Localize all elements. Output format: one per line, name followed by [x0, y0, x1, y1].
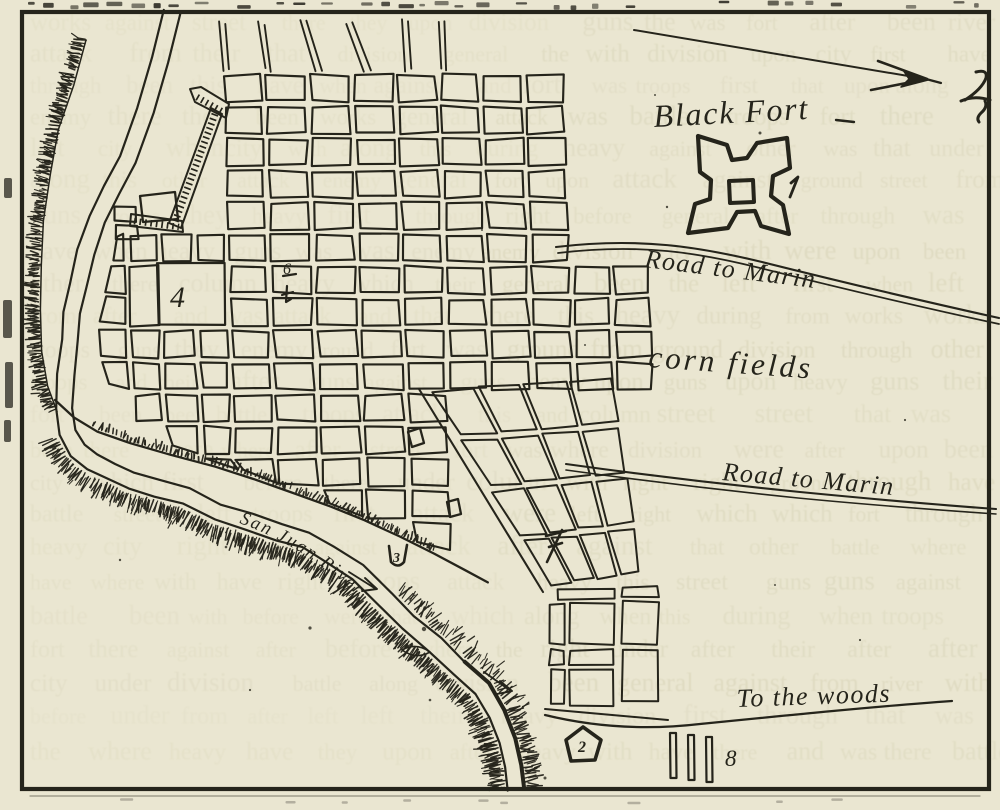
svg-text:from: from	[956, 167, 1000, 194]
svg-text:they: they	[174, 334, 219, 363]
svg-text:heavy: heavy	[169, 739, 226, 765]
svg-text:with: with	[945, 668, 991, 697]
svg-text:been: been	[129, 600, 180, 630]
svg-text:their: their	[943, 365, 992, 395]
svg-text:To the woods: To the woods	[736, 679, 891, 713]
svg-text:that: that	[873, 135, 911, 162]
svg-text:left: left	[570, 501, 599, 526]
svg-text:there: there	[880, 101, 934, 131]
svg-text:heavy: heavy	[252, 203, 307, 228]
svg-text:was: was	[591, 73, 627, 98]
svg-text:been: been	[126, 72, 174, 99]
svg-text:guns: guns	[824, 565, 875, 595]
svg-text:was: was	[935, 702, 974, 729]
svg-text:battle: battle	[30, 601, 88, 630]
svg-text:after: after	[248, 703, 289, 728]
svg-text:this: this	[659, 604, 691, 629]
svg-text:before: before	[325, 634, 391, 663]
svg-text:under: under	[929, 136, 984, 162]
svg-text:have: have	[30, 569, 72, 594]
svg-text:guns: guns	[461, 369, 506, 395]
svg-text:after: after	[928, 633, 977, 663]
svg-text:where: where	[91, 569, 145, 594]
svg-text:battle: battle	[952, 736, 1000, 765]
svg-text:right: right	[278, 568, 325, 595]
svg-text:during: during	[696, 303, 762, 330]
svg-text:been: been	[164, 402, 206, 427]
svg-text:before: before	[573, 203, 632, 228]
svg-text:3: 3	[392, 551, 400, 566]
svg-text:which: which	[772, 500, 834, 527]
svg-text:battle: battle	[216, 402, 267, 427]
svg-text:there: there	[884, 739, 932, 765]
svg-text:their: their	[193, 38, 241, 67]
svg-text:that: that	[854, 401, 892, 428]
svg-text:against: against	[167, 637, 229, 662]
svg-text:been: been	[548, 667, 599, 697]
svg-text:and: and	[536, 402, 568, 427]
svg-text:troops: troops	[882, 603, 945, 630]
svg-text:have: have	[246, 738, 293, 765]
svg-text:their: their	[158, 369, 199, 394]
svg-text:when: when	[599, 604, 651, 630]
svg-text:and: and	[787, 736, 825, 765]
svg-text:they: they	[318, 739, 358, 764]
svg-text:under: under	[111, 700, 171, 729]
svg-text:after: after	[847, 637, 891, 663]
svg-text:when: when	[819, 603, 874, 630]
svg-text:were: were	[784, 235, 836, 265]
svg-text:left: left	[308, 703, 339, 728]
svg-text:city: city	[30, 470, 63, 495]
svg-text:where: where	[910, 534, 966, 559]
svg-text:fort: fort	[820, 104, 856, 131]
svg-text:was: was	[911, 399, 951, 428]
svg-text:their: their	[771, 637, 815, 663]
svg-text:8: 8	[725, 746, 737, 771]
svg-text:city: city	[30, 670, 68, 697]
svg-text:have: have	[217, 569, 262, 595]
svg-text:upon: upon	[852, 239, 900, 265]
svg-text:division: division	[628, 438, 703, 463]
svg-text:was: was	[567, 102, 607, 131]
svg-text:have: have	[947, 41, 990, 66]
svg-text:the: the	[541, 41, 569, 66]
svg-text:2: 2	[577, 739, 586, 756]
svg-text:was: was	[823, 136, 857, 161]
svg-text:when: when	[166, 132, 225, 162]
svg-text:street: street	[657, 398, 716, 428]
svg-text:the: the	[496, 637, 523, 662]
svg-text:4: 4	[170, 281, 185, 314]
svg-text:through: through	[841, 337, 913, 362]
svg-text:that: that	[690, 534, 725, 559]
svg-text:this: this	[190, 72, 226, 99]
svg-text:battle: battle	[30, 501, 83, 527]
svg-text:division: division	[167, 667, 255, 697]
svg-text:upon: upon	[382, 738, 433, 765]
svg-text:city: city	[98, 136, 133, 161]
svg-text:guns: guns	[870, 366, 919, 395]
svg-text:there: there	[88, 636, 138, 663]
svg-text:from: from	[785, 304, 830, 329]
svg-text:6: 6	[283, 261, 291, 278]
svg-text:attack: attack	[612, 164, 677, 194]
svg-text:along: along	[30, 164, 90, 194]
svg-text:been: been	[944, 435, 993, 464]
svg-text:troops: troops	[636, 73, 691, 98]
svg-text:street: street	[880, 168, 928, 193]
svg-text:before: before	[30, 703, 86, 728]
svg-text:which: which	[451, 601, 515, 630]
svg-text:after: after	[256, 637, 297, 662]
svg-text:heavy: heavy	[563, 133, 625, 162]
svg-text:upon: upon	[844, 73, 891, 98]
svg-text:street: street	[755, 398, 814, 428]
svg-text:street: street	[676, 569, 728, 595]
svg-text:left: left	[361, 702, 394, 729]
svg-text:during: during	[723, 601, 791, 630]
svg-text:which: which	[696, 500, 758, 527]
svg-text:was: was	[840, 739, 877, 765]
svg-text:and: and	[115, 369, 147, 394]
svg-text:under: under	[95, 670, 153, 697]
svg-text:along: along	[369, 671, 418, 696]
svg-text:with: with	[154, 569, 197, 595]
svg-text:that: that	[267, 38, 307, 67]
svg-text:general: general	[617, 668, 694, 697]
svg-text:heavy: heavy	[30, 534, 87, 560]
svg-text:with: with	[585, 40, 630, 67]
svg-text:works: works	[844, 304, 903, 330]
svg-text:the: the	[30, 738, 61, 765]
svg-text:before: before	[243, 604, 299, 629]
svg-text:from: from	[181, 703, 228, 729]
svg-text:fort: fort	[30, 637, 65, 663]
svg-text:division: division	[338, 41, 409, 66]
svg-text:column: column	[179, 269, 257, 298]
svg-text:first: first	[870, 41, 905, 66]
svg-text:right: right	[630, 501, 672, 526]
svg-text:heavy: heavy	[537, 569, 592, 594]
svg-text:fort: fort	[453, 438, 488, 464]
svg-text:troops: troops	[302, 401, 365, 428]
svg-text:where: where	[550, 438, 609, 464]
svg-text:battle: battle	[831, 534, 880, 559]
svg-text:right: right	[505, 203, 551, 229]
svg-text:through: through	[416, 203, 488, 228]
svg-text:against: against	[649, 136, 711, 161]
svg-text:been: been	[923, 239, 967, 264]
svg-text:against: against	[896, 569, 962, 594]
svg-text:was: was	[923, 199, 965, 229]
svg-text:through: through	[820, 203, 895, 229]
svg-text:other: other	[931, 334, 985, 363]
svg-text:where: where	[88, 736, 152, 765]
svg-text:after: after	[804, 438, 845, 463]
svg-text:fort: fort	[390, 336, 426, 363]
svg-text:left: left	[928, 268, 964, 298]
svg-text:other: other	[749, 534, 798, 560]
svg-text:with: with	[188, 604, 227, 629]
svg-text:after: after	[691, 637, 735, 663]
svg-text:after: after	[230, 365, 279, 395]
svg-text:city: city	[103, 531, 142, 560]
svg-text:general: general	[444, 41, 509, 66]
svg-text:battle: battle	[293, 671, 342, 696]
svg-text:upon: upon	[594, 368, 645, 395]
svg-text:along: along	[524, 603, 580, 630]
svg-text:ground: ground	[801, 168, 863, 193]
svg-text:guns: guns	[766, 569, 811, 595]
svg-text:that: that	[413, 303, 451, 330]
svg-text:upon: upon	[879, 437, 930, 464]
svg-text:attack: attack	[447, 569, 504, 595]
svg-text:their: their	[420, 702, 466, 729]
